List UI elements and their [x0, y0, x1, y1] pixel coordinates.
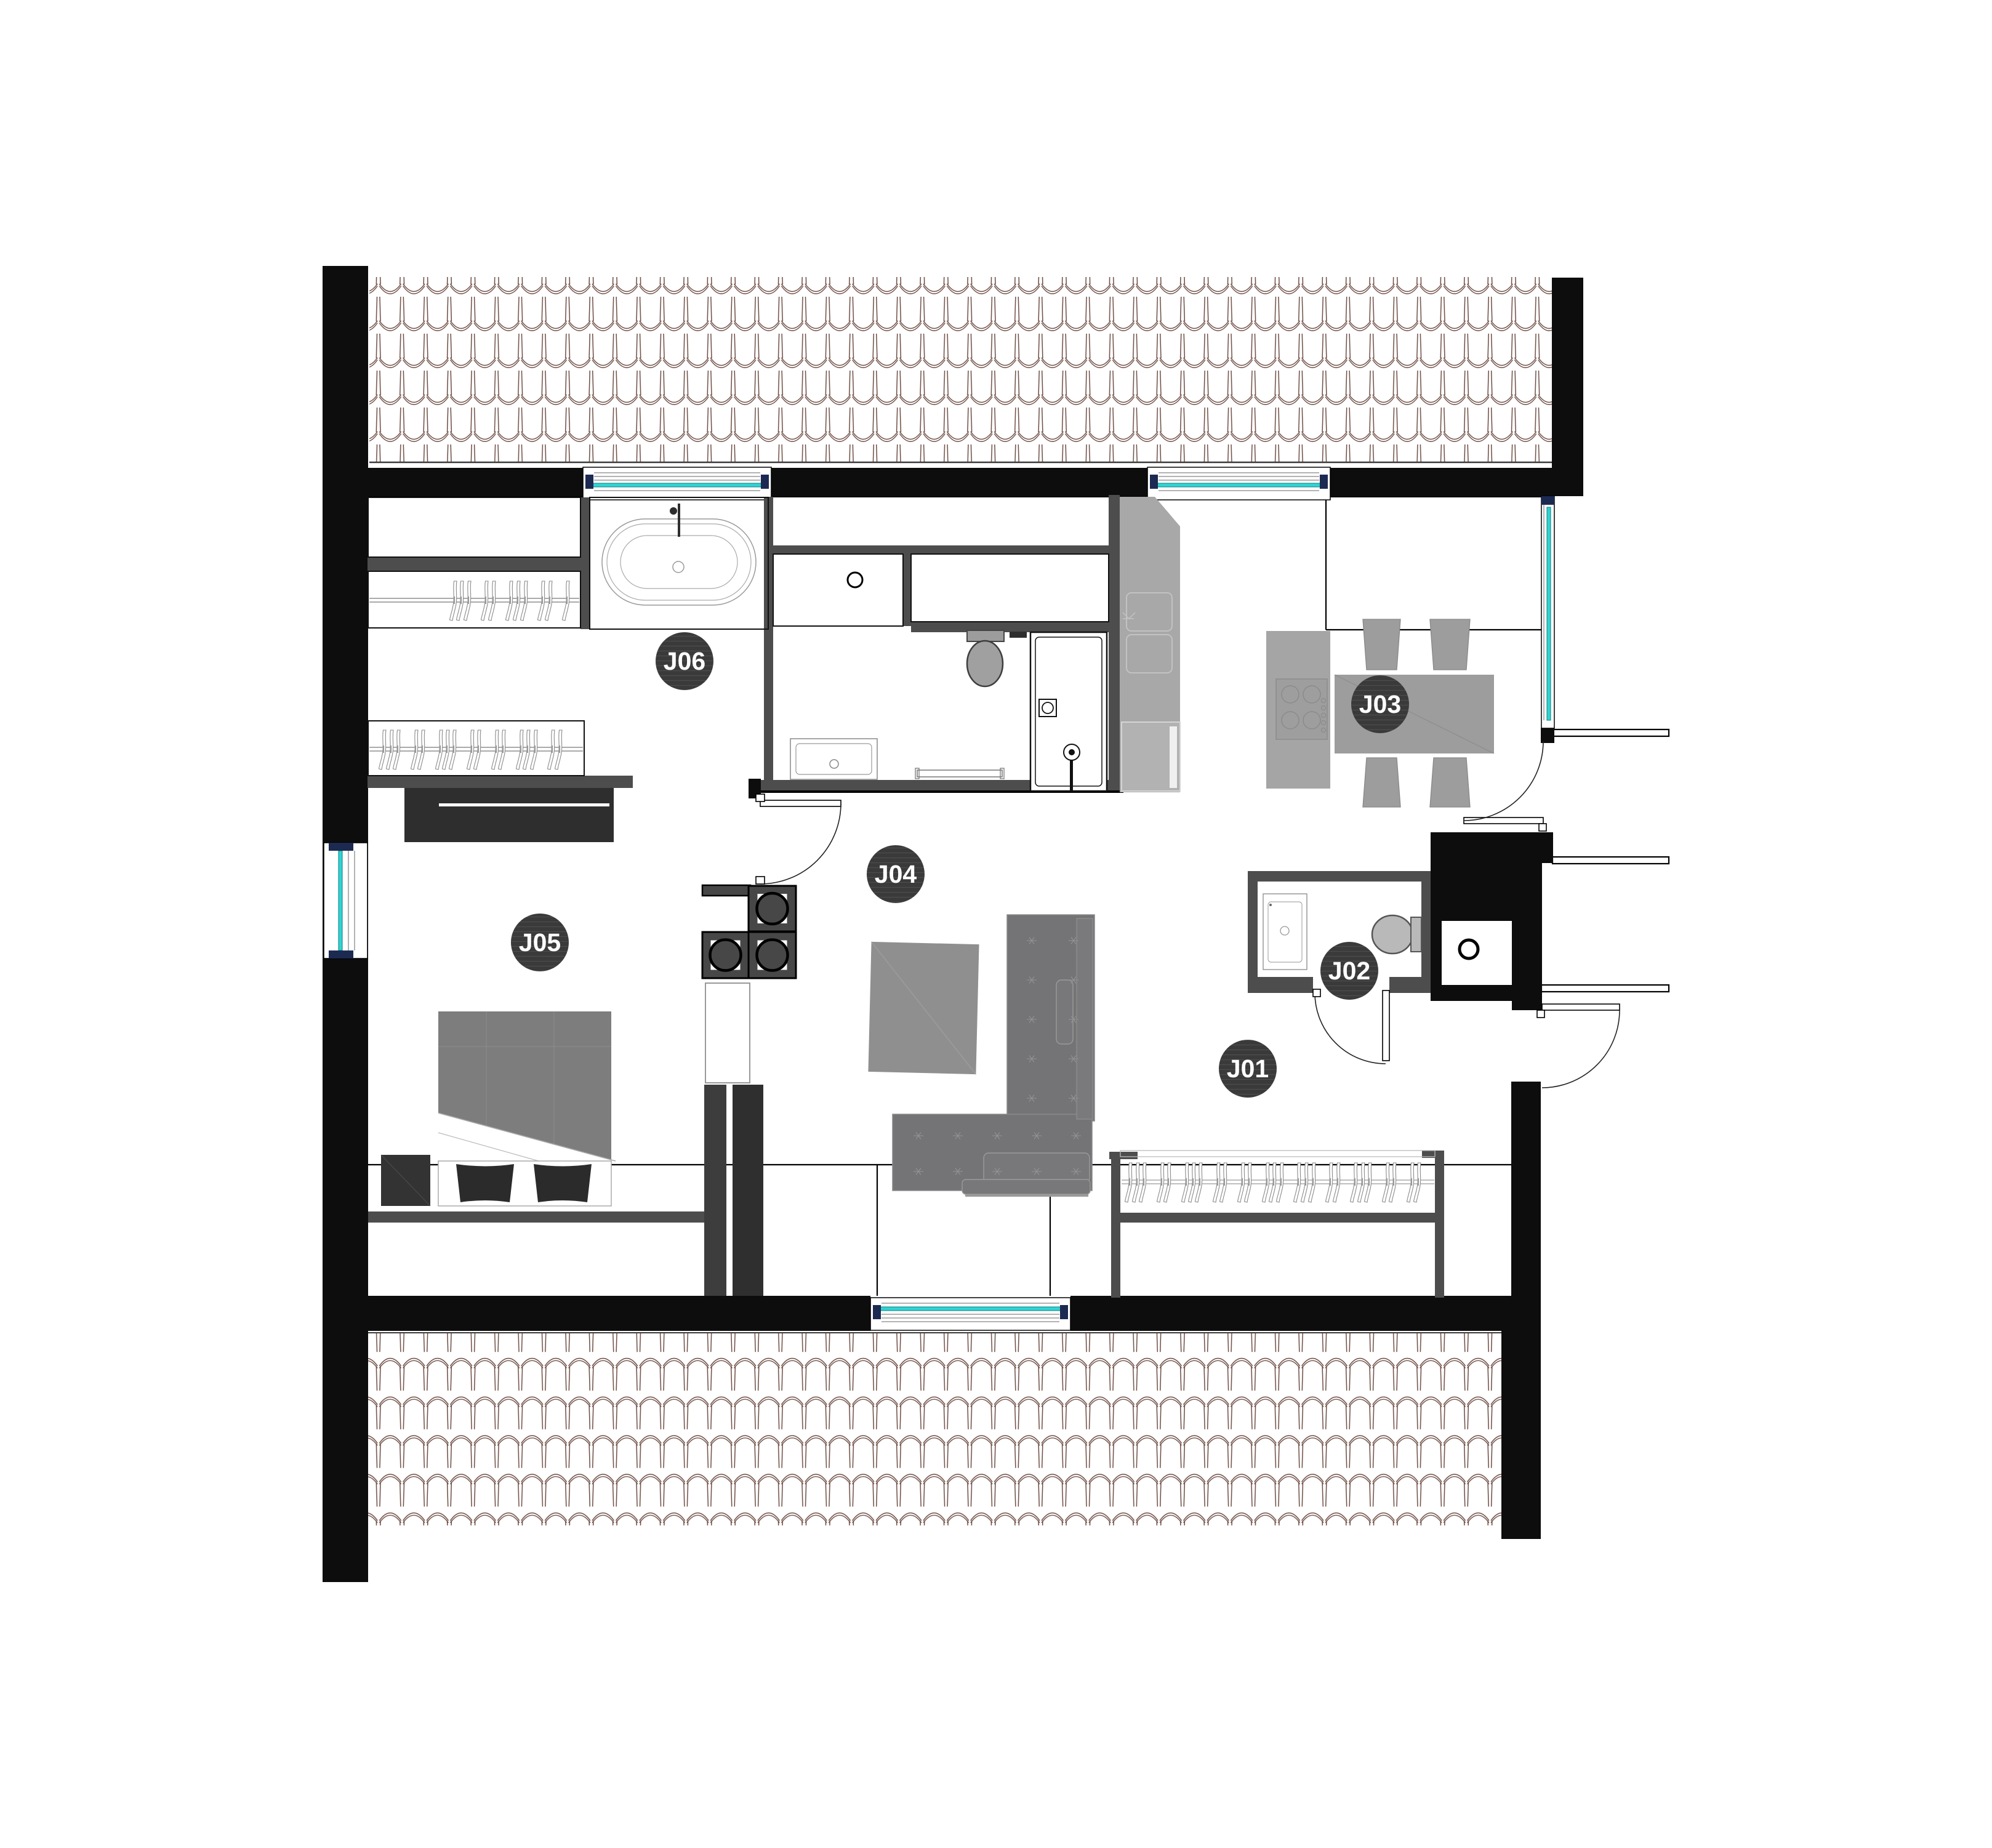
svg-text:J02: J02 — [1328, 957, 1370, 985]
svg-text:J04: J04 — [875, 860, 917, 888]
svg-text:J05: J05 — [519, 928, 561, 957]
svg-text:J01: J01 — [1227, 1055, 1269, 1083]
svg-text:J03: J03 — [1359, 690, 1401, 718]
svg-text:J06: J06 — [664, 647, 705, 675]
